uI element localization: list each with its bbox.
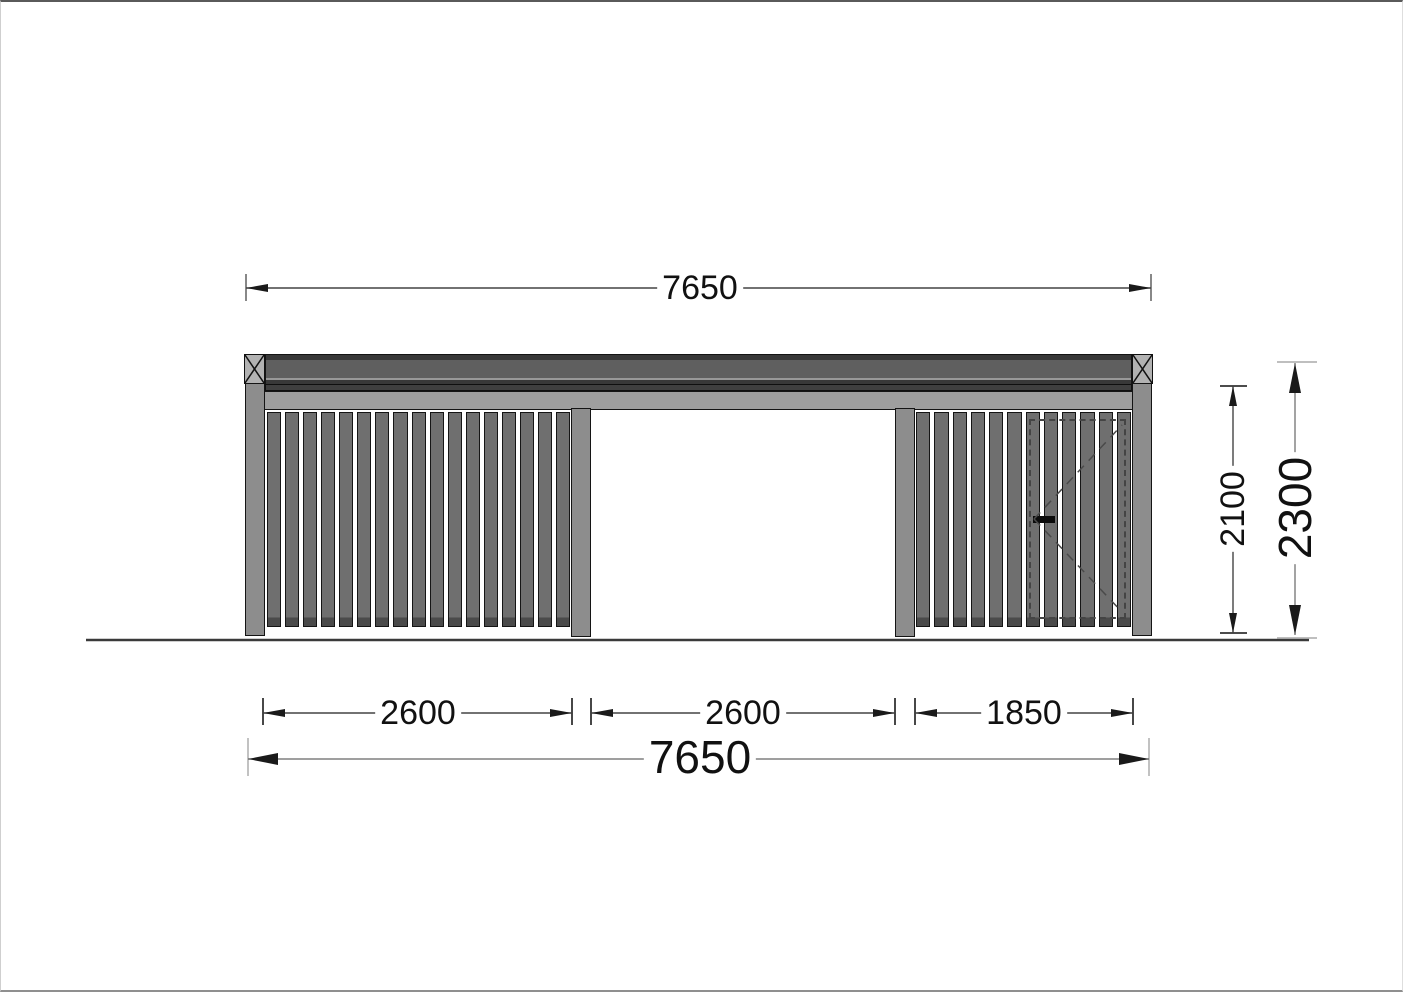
dim-overall-height: 2300 — [1272, 452, 1318, 564]
dim-bay-left: 2600 — [375, 696, 461, 730]
elevation-drawing: 7650 2600 2600 1850 7650 2100 2300 — [0, 0, 1403, 992]
door-swing-lines — [1034, 425, 1122, 612]
dim-clear-height: 2100 — [1216, 466, 1250, 552]
dim-overall-width-bottom: 7650 — [644, 734, 756, 780]
dimension-and-annotation-layer — [1, 2, 1403, 992]
dim-bay-right: 1850 — [981, 696, 1067, 730]
dim-overall-width-top: 7650 — [657, 271, 743, 305]
post-cap-x-marks — [245, 355, 1152, 383]
dim-bay-middle: 2600 — [700, 696, 786, 730]
